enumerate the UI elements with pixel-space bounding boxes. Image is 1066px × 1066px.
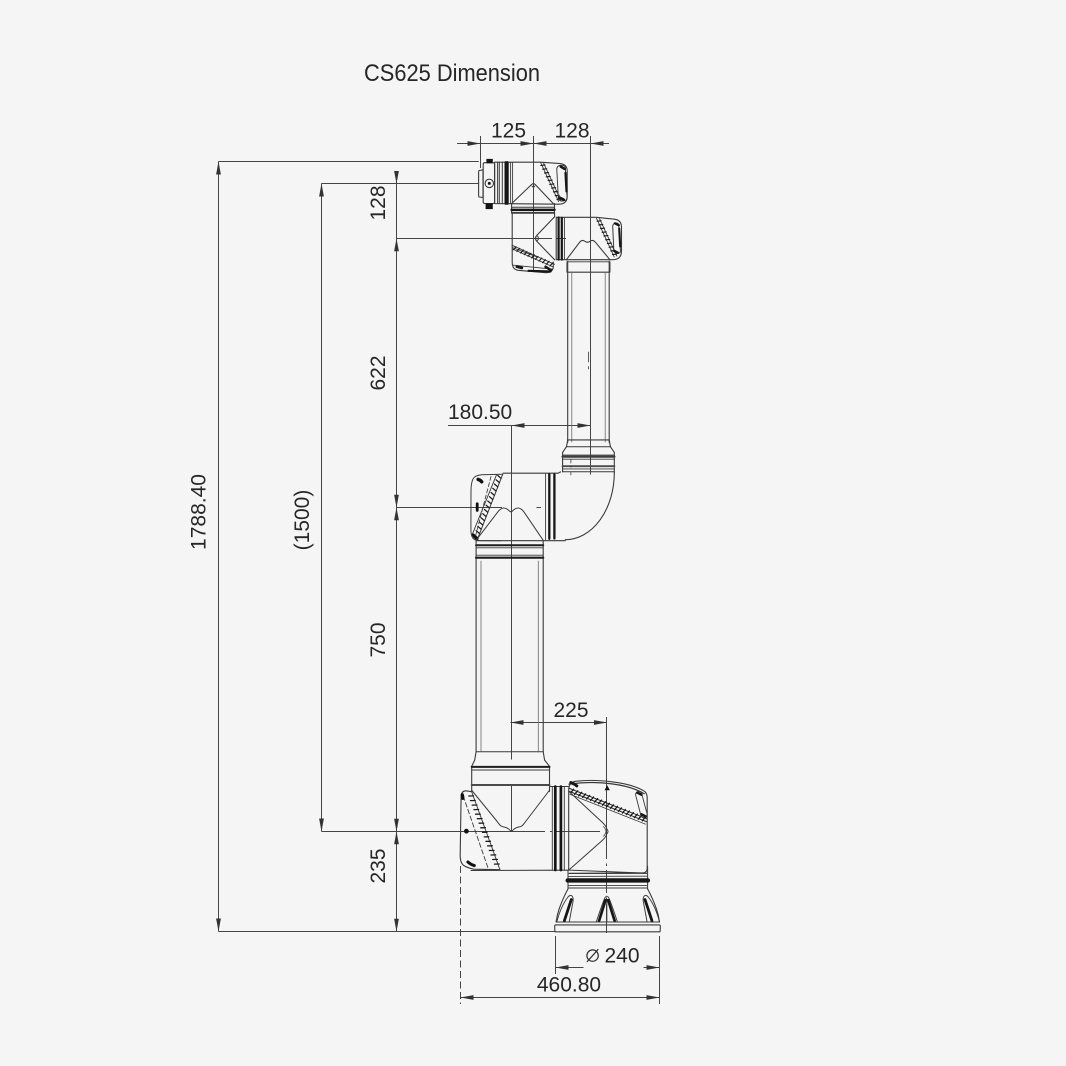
svg-text:125: 125 <box>491 120 526 143</box>
svg-text:(1500): (1500) <box>291 490 314 551</box>
svg-text:235: 235 <box>367 848 390 883</box>
svg-text:240: 240 <box>605 945 640 968</box>
svg-text:750: 750 <box>367 622 390 657</box>
svg-text:128: 128 <box>554 120 589 143</box>
svg-text:180.50: 180.50 <box>448 401 512 424</box>
svg-text:128: 128 <box>367 185 390 220</box>
svg-text:460.80: 460.80 <box>537 974 601 997</box>
svg-text:225: 225 <box>553 699 588 722</box>
svg-text:622: 622 <box>367 355 390 390</box>
svg-text:1788.40: 1788.40 <box>188 474 211 550</box>
svg-text:CS625 Dimension: CS625 Dimension <box>364 60 540 87</box>
